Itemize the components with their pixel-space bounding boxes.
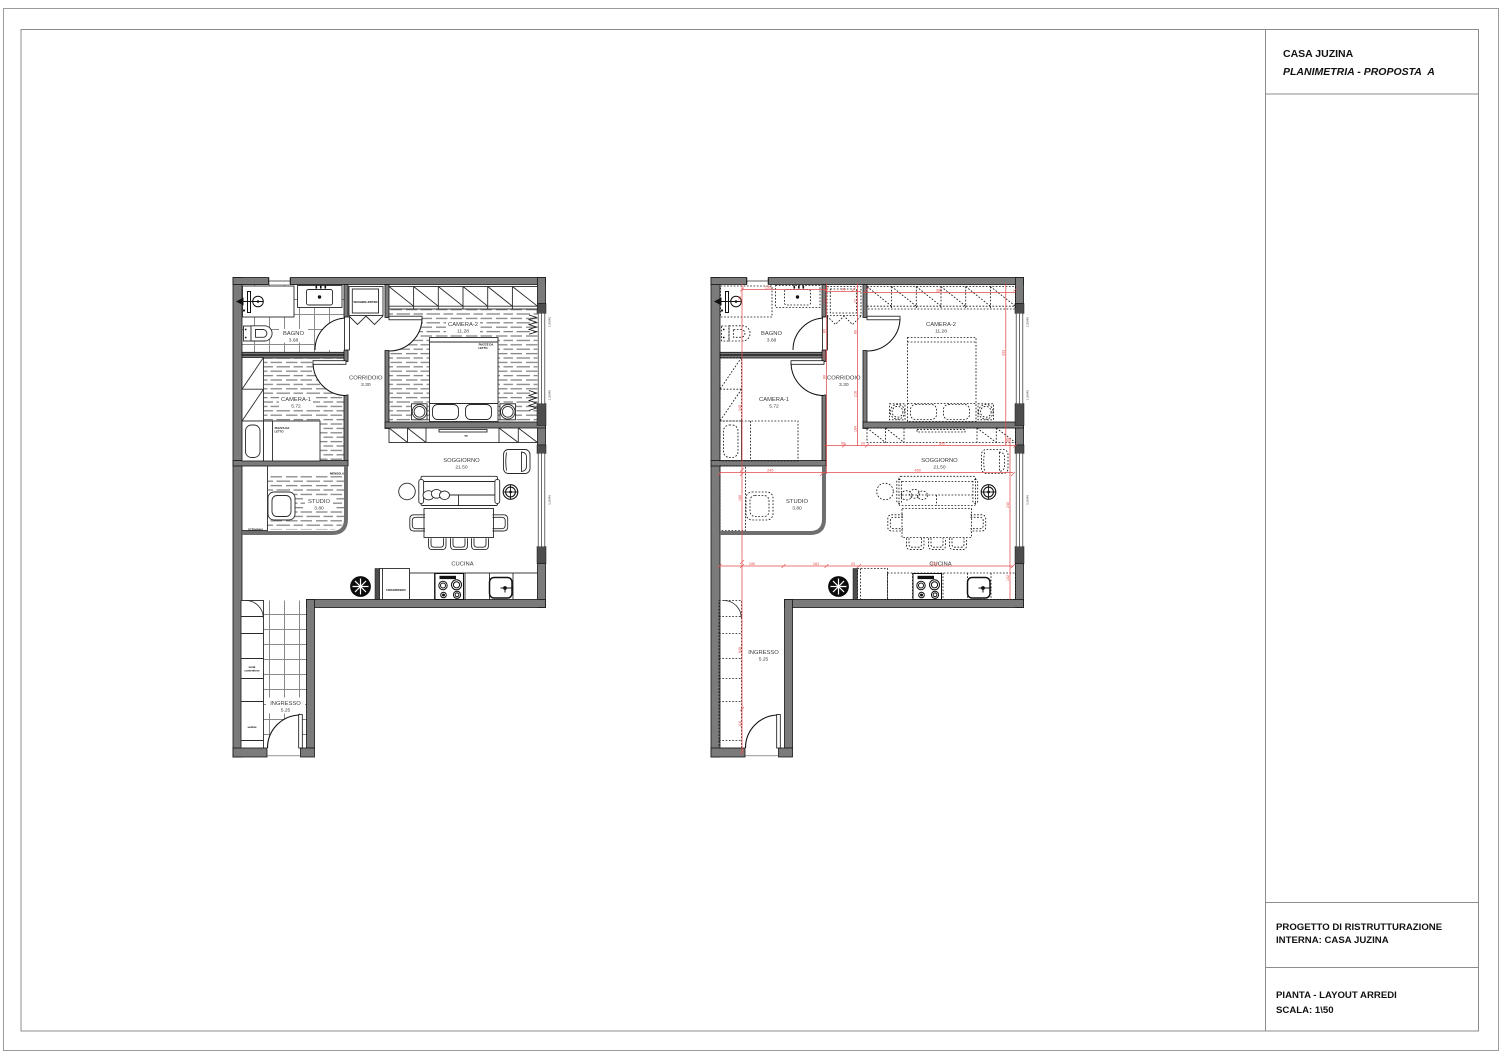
svg-text:90: 90	[841, 441, 845, 445]
svg-text:INGRESSO: INGRESSO	[748, 650, 779, 656]
svg-text:90: 90	[841, 287, 845, 291]
svg-text:450: 450	[915, 468, 921, 472]
svg-text:INTERNA: CASA JUZINA: INTERNA: CASA JUZINA	[1276, 935, 1389, 946]
svg-text:940: 940	[738, 647, 742, 653]
svg-text:240: 240	[1006, 502, 1010, 508]
svg-text:contenitore: contenitore	[244, 669, 260, 673]
svg-text:375: 375	[931, 562, 937, 566]
svg-text:80: 80	[853, 330, 857, 334]
svg-text:120,1: 120,1	[822, 350, 826, 360]
svg-text:125: 125	[738, 296, 742, 302]
svg-text:5.25: 5.25	[281, 708, 291, 714]
svg-text:PROGETTO DI RISTRUTTURAZIONE: PROGETTO DI RISTRUTTURAZIONE	[1276, 922, 1443, 933]
svg-text:sedute: sedute	[247, 725, 256, 729]
svg-text:216: 216	[853, 391, 857, 397]
svg-text:161: 161	[813, 562, 819, 566]
svg-text:102: 102	[1006, 575, 1010, 581]
svg-text:235: 235	[765, 285, 771, 289]
svg-text:90: 90	[1006, 438, 1010, 442]
svg-text:MENSOLA: MENSOLA	[330, 472, 344, 476]
svg-text:SCALA: 1\50: SCALA: 1\50	[1276, 1005, 1334, 1016]
svg-text:245: 245	[767, 468, 773, 472]
svg-text:164: 164	[853, 426, 857, 432]
svg-text:245: 245	[738, 405, 742, 411]
svg-text:CASA JUZINA: CASA JUZINA	[1283, 48, 1354, 60]
svg-text:PIANTA - LAYOUT ARREDI: PIANTA - LAYOUT ARREDI	[1276, 990, 1397, 1001]
svg-text:80: 80	[822, 375, 826, 379]
svg-text:INGRESSO: INGRESSO	[270, 701, 301, 707]
svg-text:72: 72	[853, 299, 857, 303]
svg-text:72: 72	[822, 299, 826, 303]
svg-text:20: 20	[861, 441, 865, 445]
svg-text:20: 20	[851, 562, 855, 566]
svg-text:LETTO: LETTO	[274, 430, 284, 434]
svg-text:FRIGORIFERO: FRIGORIFERO	[386, 588, 406, 592]
svg-text:80: 80	[822, 329, 826, 333]
svg-text:PLANIMETRIA - PROPOSTA A: PLANIMETRIA - PROPOSTA A	[1283, 66, 1435, 78]
svg-text:LETTO: LETTO	[478, 346, 488, 350]
svg-text:300: 300	[939, 441, 945, 445]
svg-text:TV: TV	[464, 434, 468, 438]
svg-text:150: 150	[749, 562, 755, 566]
svg-text:WASHING-DRYER: WASHING-DRYER	[354, 300, 378, 304]
svg-text:SCRIVANIA: SCRIVANIA	[248, 528, 263, 532]
svg-text:160: 160	[738, 495, 742, 501]
svg-text:333: 333	[1002, 350, 1006, 356]
svg-text:5.25: 5.25	[759, 657, 769, 663]
svg-text:380: 380	[936, 288, 942, 292]
svg-text:118: 118	[738, 721, 742, 727]
